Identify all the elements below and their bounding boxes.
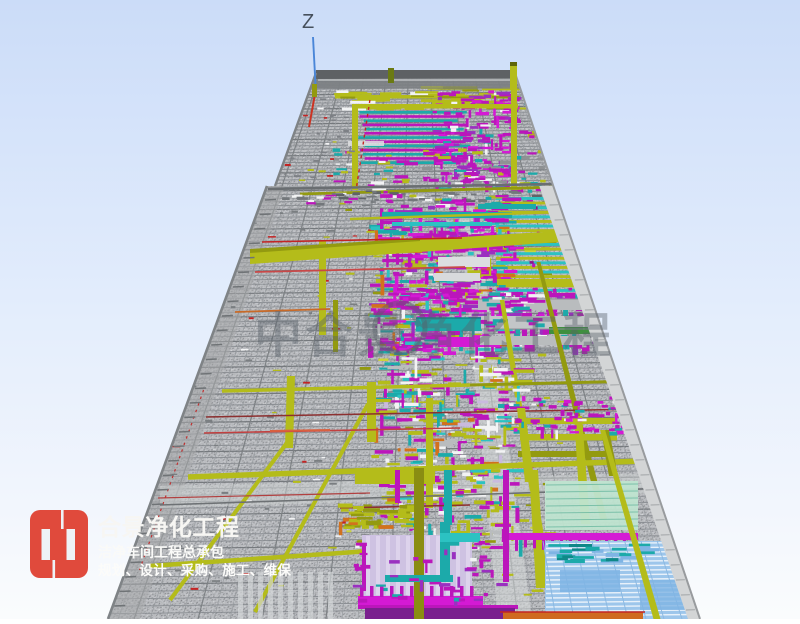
svg-text:Z: Z [302,11,314,33]
svg-text:合景净化工程: 合景净化工程 [98,514,240,540]
svg-text:规划、设计、采购、施工、维保: 规划、设计、采购、施工、维保 [98,562,291,578]
svg-text:中合景净化工程: 中合景净化工程 [254,310,615,363]
svg-text:洁净车间工程总承包: 洁净车间工程总承包 [98,544,224,560]
